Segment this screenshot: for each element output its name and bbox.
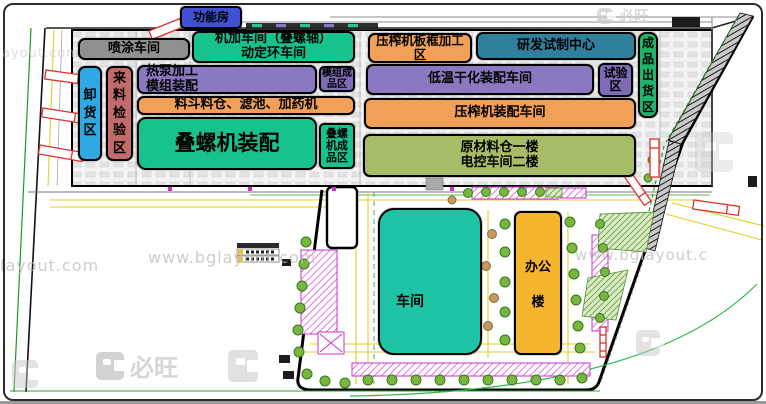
office-label-top: 办公 bbox=[525, 261, 551, 276]
zone-function-room: 功能房 bbox=[180, 6, 242, 29]
gate-house bbox=[327, 187, 357, 248]
zone-heat-pump-module: 热泵加工 模组装配 bbox=[137, 65, 317, 94]
zone-hopper-line: 料斗料仓、滤池、加药机 bbox=[137, 96, 355, 115]
zone-stacked-screw-finished: 叠螺 机成 品区 bbox=[319, 123, 355, 169]
zone-stacked-screw-assembly: 叠螺机装配 bbox=[137, 117, 317, 170]
zone-office-building: 办公 楼 bbox=[514, 211, 562, 355]
zone-test-area: 试验 区 bbox=[598, 63, 633, 97]
zone-raw-material-warehouse: 原材料仓一楼 电控车间二楼 bbox=[363, 134, 636, 177]
zone-low-temp-drying: 低温干化装配车间 bbox=[366, 64, 594, 95]
zone-module-finished: 模组成 品区 bbox=[319, 66, 355, 92]
zone-press-plate-frame: 压榨机板框加工 区 bbox=[368, 33, 472, 63]
zone-spray-workshop: 喷涂车间 bbox=[78, 38, 190, 60]
factory-site-plan: 功能房 喷涂车间 机加车间（叠螺轴） 动定环车间 热泵加工 模组装配 模组成 品… bbox=[0, 0, 766, 404]
zone-machining-workshop: 机加车间（叠螺轴） 动定环车间 bbox=[192, 31, 355, 63]
crosswalk bbox=[426, 178, 443, 190]
zone-press-assembly: 压榨机装配车间 bbox=[364, 98, 636, 129]
machine-row-strip bbox=[246, 23, 378, 30]
zone-unloading-area: 卸货区 bbox=[78, 66, 102, 161]
zone-workshop-south: 车间 bbox=[378, 208, 482, 355]
legend-table bbox=[237, 243, 279, 262]
zone-incoming-inspection: 来料检验区 bbox=[106, 66, 133, 161]
office-label-bottom: 楼 bbox=[531, 296, 544, 311]
zone-finished-shipping: 成品出货区 bbox=[638, 32, 658, 118]
zone-rd-pilot-center: 研发试制中心 bbox=[476, 32, 636, 60]
